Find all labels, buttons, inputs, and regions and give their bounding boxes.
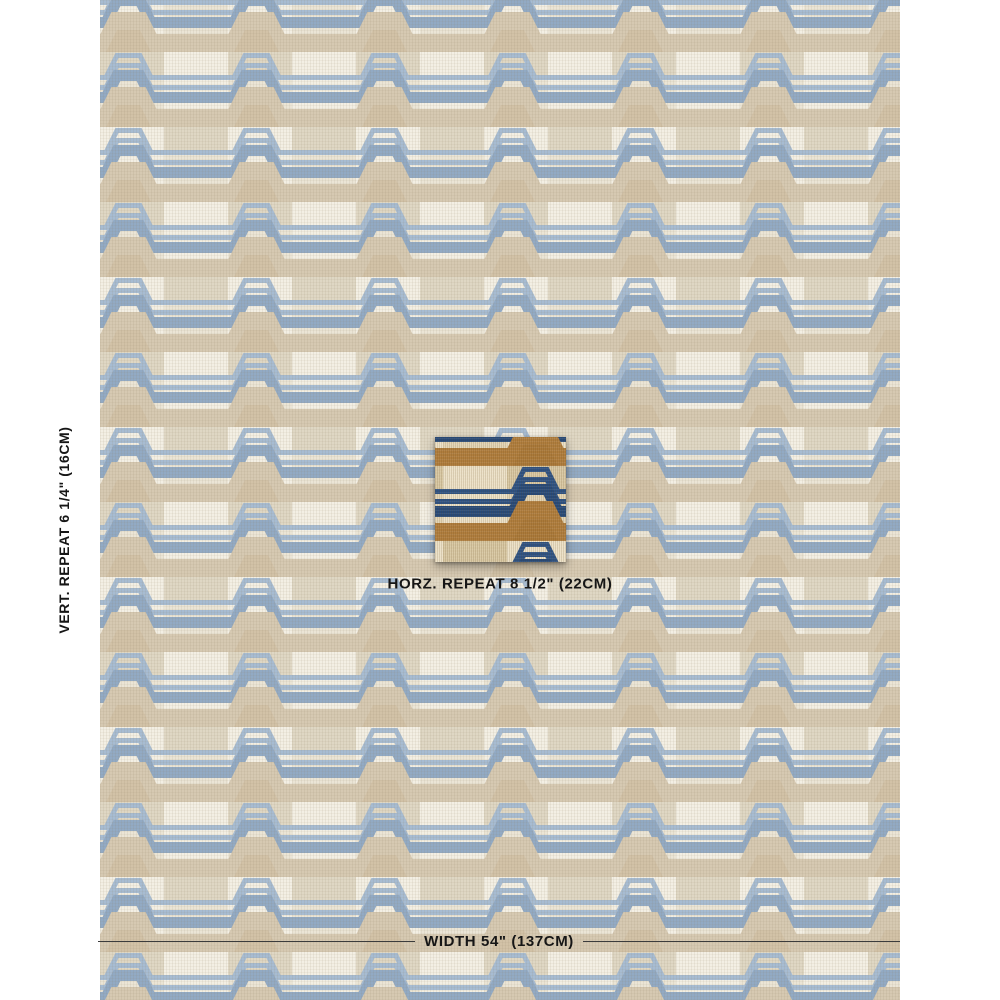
horizontal-repeat-label: HORZ. REPEAT 8 1/2" (22CM) <box>388 576 613 593</box>
width-line-right-segment <box>583 941 900 942</box>
vertical-repeat-label: VERT. REPEAT 6 1/4" (16CM) <box>56 426 72 633</box>
repeat-swatch-image <box>435 437 566 562</box>
repeat-swatch-svg <box>435 437 566 562</box>
product-image-canvas: VERT. REPEAT 6 1/4" (16CM) HORZ. REPEAT … <box>0 0 1000 1000</box>
width-marker: WIDTH 54" (137CM) <box>98 933 900 949</box>
width-line-left-segment <box>98 941 415 942</box>
width-label: WIDTH 54" (137CM) <box>424 933 574 950</box>
